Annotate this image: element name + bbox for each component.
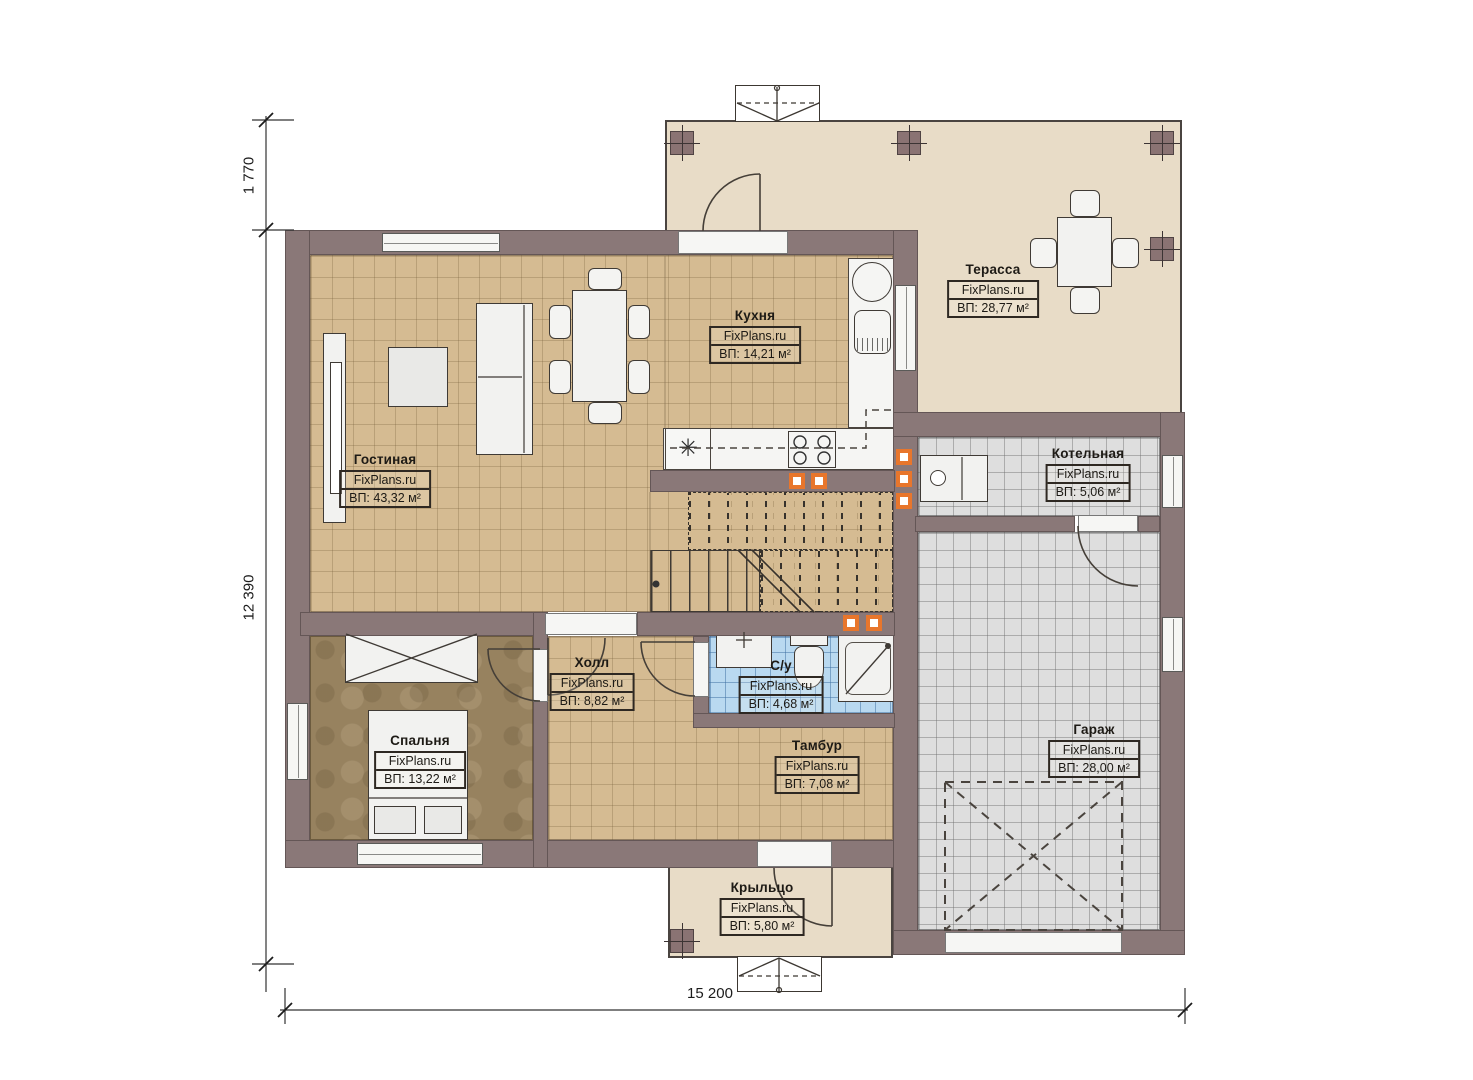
room-info-box: FixPlans.ru ВП: 8,82 м²: [550, 673, 635, 711]
room-area: ВП: 13,22 м²: [376, 771, 464, 787]
room-area: ВП: 4,68 м²: [741, 696, 822, 712]
wall-north: [285, 230, 915, 255]
room-area: ВП: 5,06 м²: [1048, 484, 1129, 500]
room-brand: FixPlans.ru: [1050, 742, 1138, 760]
stair-lower-flight: [650, 550, 760, 612]
garage-gate-opening: [945, 932, 1122, 953]
room-name: Холл: [550, 655, 635, 670]
room-label-terrace: Терасса FixPlans.ru ВП: 28,77 м²: [947, 262, 1039, 318]
room-label-kitchen: Кухня FixPlans.ru ВП: 14,21 м²: [709, 308, 801, 364]
wardrobe: [345, 633, 478, 683]
sink-drainer: [857, 338, 888, 351]
vent-marker-icon: [896, 449, 912, 465]
room-label-porch: Крыльцо FixPlans.ru ВП: 5,80 м²: [720, 880, 805, 936]
terrace-floor-upper: [665, 120, 1182, 232]
kitchen-window-east: [895, 285, 916, 371]
bedroom-window-west: [287, 703, 308, 780]
terrace-table: [1057, 217, 1112, 287]
room-area: ВП: 43,32 м²: [341, 490, 429, 506]
dimension-terrace-depth: 1 770: [241, 141, 258, 211]
dining-chair: [628, 360, 650, 394]
room-name: Тамбур: [775, 738, 860, 753]
room-brand: FixPlans.ru: [552, 675, 633, 693]
room-name: Кухня: [709, 308, 801, 323]
vent-marker-icon: [896, 471, 912, 487]
hood-appliance: ✳: [665, 428, 711, 470]
room-label-bedroom: Спальня FixPlans.ru ВП: 13,22 м²: [374, 733, 466, 789]
vent-marker-icon: [843, 615, 859, 631]
entry-door-opening: [757, 841, 832, 867]
room-name: Крыльцо: [720, 880, 805, 895]
wall-boiler-north: [893, 412, 1185, 437]
room-brand: FixPlans.ru: [341, 472, 429, 490]
wall-boiler-garage-stub: [1138, 516, 1160, 532]
fridge-icon: [852, 262, 892, 302]
coffee-table: [388, 347, 448, 407]
garage-window-east: [1162, 617, 1183, 672]
floor-plan: ✳: [0, 0, 1473, 1080]
terrace-chair: [1070, 190, 1100, 217]
room-info-box: FixPlans.ru ВП: 5,80 м²: [720, 898, 805, 936]
room-info-box: FixPlans.ru ВП: 5,06 м²: [1046, 464, 1131, 502]
room-info-box: FixPlans.ru ВП: 14,21 м²: [709, 326, 801, 364]
room-label-hall: Холл FixPlans.ru ВП: 8,82 м²: [550, 655, 635, 711]
terrace-chair: [1070, 287, 1100, 314]
room-name: Гостиная: [339, 452, 431, 467]
hall-door-opening: [545, 613, 637, 635]
room-brand: FixPlans.ru: [741, 678, 822, 696]
room-area: ВП: 7,08 м²: [777, 776, 858, 792]
vent-marker-icon: [866, 615, 882, 631]
room-area: ВП: 28,00 м²: [1050, 760, 1138, 776]
room-brand: FixPlans.ru: [1048, 466, 1129, 484]
room-name: Гараж: [1048, 722, 1140, 737]
dining-chair: [588, 402, 622, 424]
vent-marker-icon: [811, 473, 827, 489]
boiler-garage-door-leaf: [1078, 515, 1138, 532]
room-name: С/у: [739, 658, 824, 673]
room-info-box: FixPlans.ru ВП: 28,00 м²: [1048, 740, 1140, 778]
room-name: Спальня: [374, 733, 466, 748]
room-info-box: FixPlans.ru ВП: 7,08 м²: [775, 756, 860, 794]
pillow: [374, 806, 416, 834]
room-name: Котельная: [1046, 446, 1131, 461]
room-label-bath: С/у FixPlans.ru ВП: 4,68 м²: [739, 658, 824, 714]
terrace-post: [1150, 237, 1174, 261]
terrace-chair: [1112, 238, 1139, 268]
terrace-post: [670, 131, 694, 155]
room-info-box: FixPlans.ru ВП: 43,32 м²: [339, 470, 431, 508]
wall-kitchen-south: [650, 470, 895, 492]
stove: [788, 431, 836, 468]
room-brand: FixPlans.ru: [777, 758, 858, 776]
room-label-garage: Гараж FixPlans.ru ВП: 28,00 м²: [1048, 722, 1140, 778]
porch-post: [670, 929, 694, 953]
living-window-north: [382, 233, 500, 252]
terrace-post: [897, 131, 921, 155]
room-label-boiler: Котельная FixPlans.ru ВП: 5,06 м²: [1046, 446, 1131, 502]
room-label-vestibule: Тамбур FixPlans.ru ВП: 7,08 м²: [775, 738, 860, 794]
vent-marker-icon: [789, 473, 805, 489]
dining-chair: [588, 268, 622, 290]
bedroom-door-opening: [533, 649, 548, 702]
room-area: ВП: 28,77 м²: [949, 300, 1037, 316]
boiler-dial-icon: [930, 470, 946, 486]
dining-chair: [549, 360, 571, 394]
room-info-box: FixPlans.ru ВП: 13,22 м²: [374, 751, 466, 789]
room-brand: FixPlans.ru: [376, 753, 464, 771]
dimension-house-height: 12 390: [241, 558, 258, 638]
room-area: ВП: 14,21 м²: [711, 346, 799, 362]
room-brand: FixPlans.ru: [722, 900, 803, 918]
room-brand: FixPlans.ru: [711, 328, 799, 346]
terrace-steps: [735, 85, 820, 122]
room-area: ВП: 8,82 м²: [552, 693, 633, 709]
sofa: [476, 303, 533, 455]
appliance-star-icon: ✳: [678, 437, 698, 461]
wall-hall-north-left: [300, 612, 545, 636]
terrace-post: [1150, 131, 1174, 155]
room-brand: FixPlans.ru: [949, 282, 1037, 300]
room-name: Терасса: [947, 262, 1039, 277]
stair-upper-flight: [688, 492, 893, 550]
bath-door-opening: [693, 642, 709, 697]
pillow: [424, 806, 462, 834]
room-area: ВП: 5,80 м²: [722, 918, 803, 934]
room-info-box: FixPlans.ru ВП: 4,68 м²: [739, 676, 824, 714]
dining-table: [572, 290, 627, 402]
vent-marker-icon: [896, 493, 912, 509]
wall-bath-south: [693, 713, 895, 728]
boiler-window-east: [1162, 455, 1183, 508]
wall-boiler-garage: [915, 516, 1075, 532]
dining-chair: [549, 305, 571, 339]
bedroom-window-south: [357, 843, 483, 865]
dining-chair: [628, 305, 650, 339]
shower-inner: [845, 642, 891, 695]
room-label-living: Гостиная FixPlans.ru ВП: 43,32 м²: [339, 452, 431, 508]
room-info-box: FixPlans.ru ВП: 28,77 м²: [947, 280, 1039, 318]
dimension-house-width: 15 200: [650, 985, 770, 1002]
stair-lower-dashed-flight: [760, 550, 893, 612]
terrace-door-opening: [678, 231, 788, 254]
